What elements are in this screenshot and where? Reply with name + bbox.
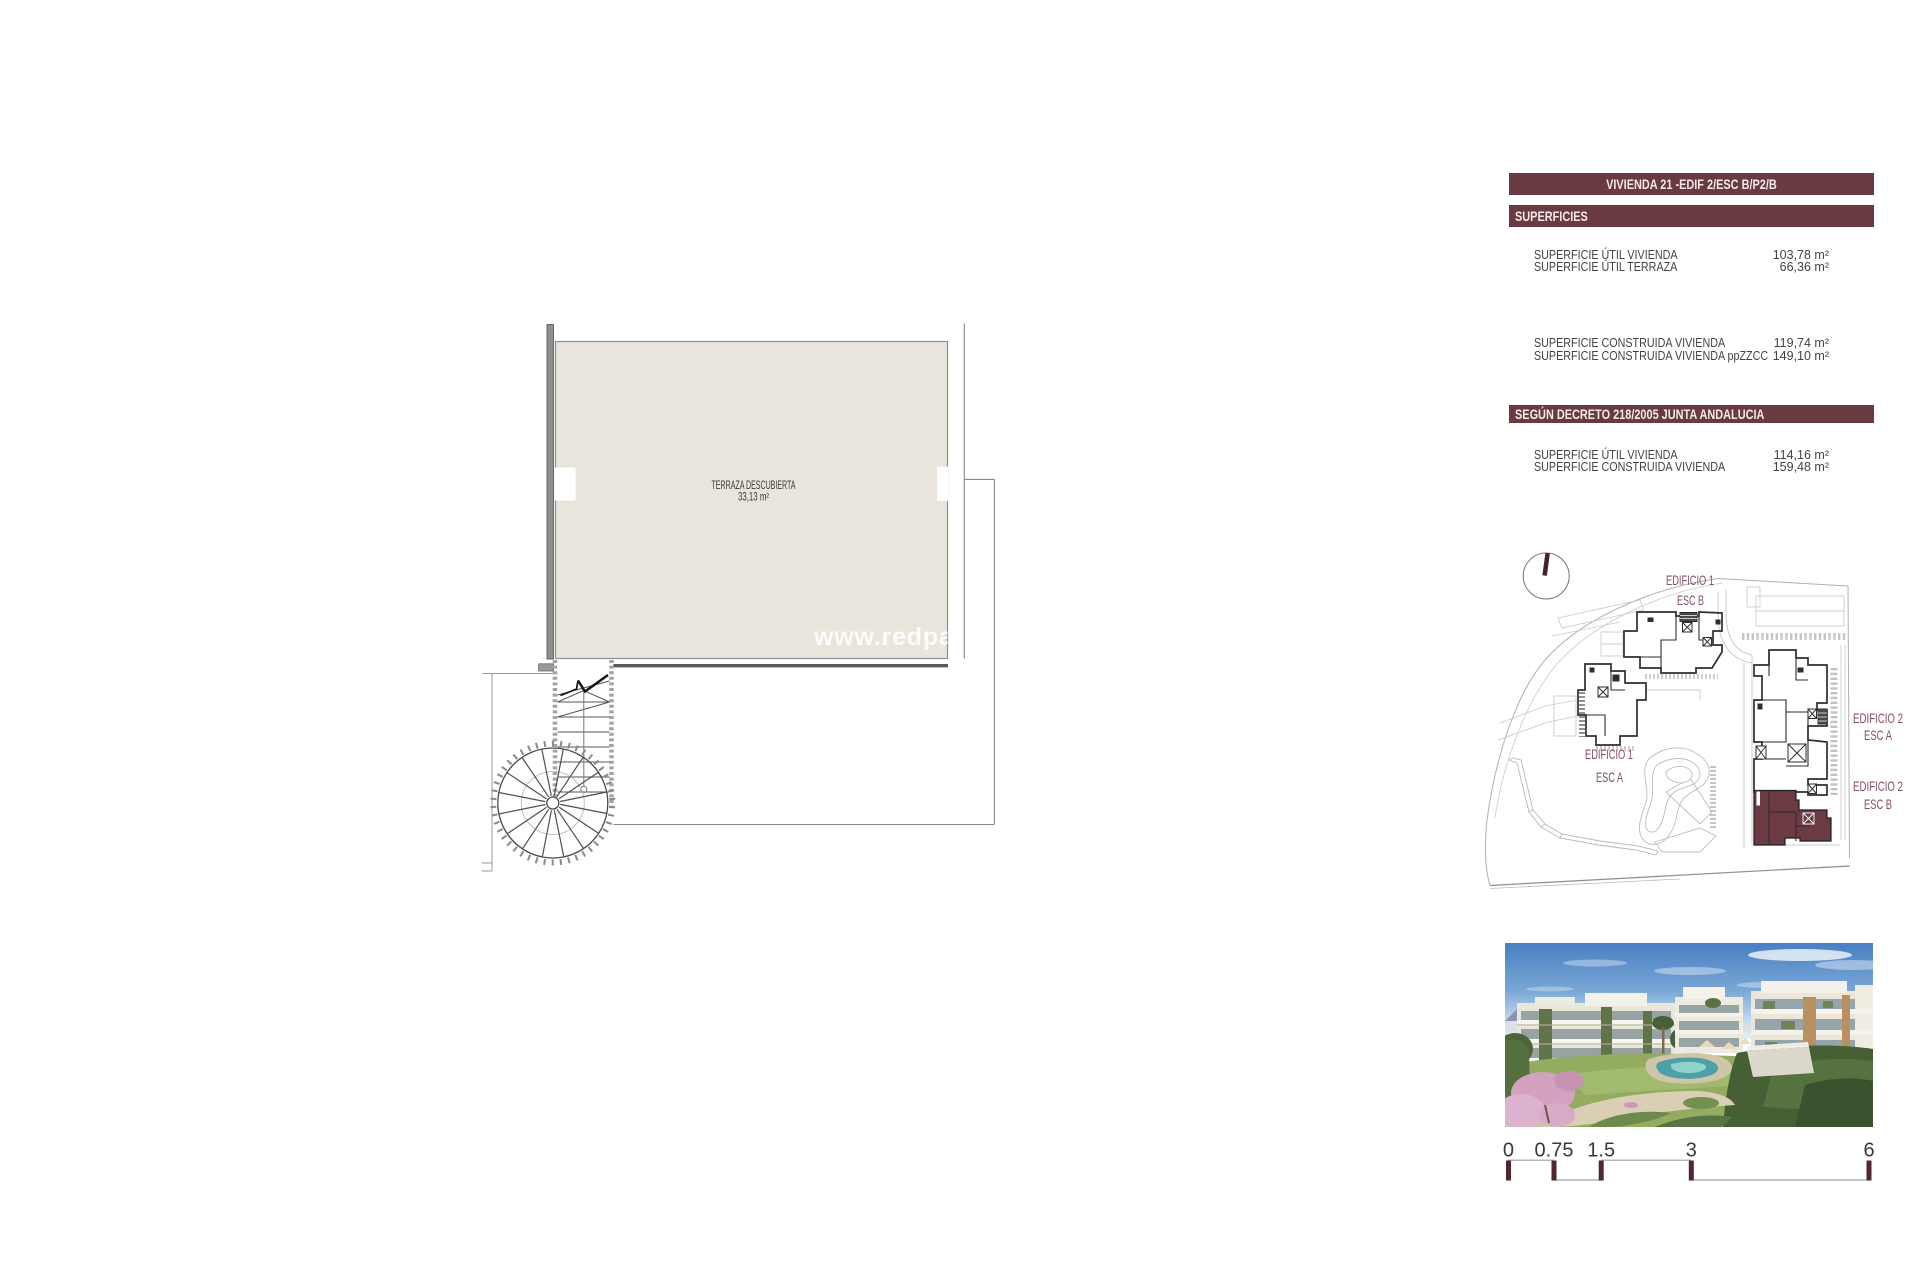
svg-text:3: 3 — [1686, 1140, 1697, 1162]
svg-text:ESC B: ESC B — [1677, 592, 1704, 608]
svg-text:EDIFICIO 1: EDIFICIO 1 — [1666, 572, 1714, 588]
svg-text:0: 0 — [1503, 1140, 1514, 1162]
svg-text:ESC B: ESC B — [1864, 796, 1892, 812]
svg-text:EDIFICIO 2: EDIFICIO 2 — [1853, 778, 1903, 794]
svg-text:ESC A: ESC A — [1864, 727, 1892, 743]
svg-text:www.redpalmproperties: www.redpalmproperties — [813, 623, 1040, 651]
svg-text:TERRAZA DESCUBIERTA: TERRAZA DESCUBIERTA — [712, 480, 796, 492]
svg-text:33,13 m²: 33,13 m² — [738, 492, 769, 504]
svg-text:EDIFICIO 1: EDIFICIO 1 — [1585, 746, 1633, 762]
svg-text:EDIFICIO 2: EDIFICIO 2 — [1853, 710, 1903, 726]
svg-text:1.5: 1.5 — [1587, 1140, 1615, 1162]
svg-text:6: 6 — [1863, 1140, 1874, 1162]
svg-text:0.75: 0.75 — [1535, 1140, 1574, 1162]
svg-text:ESC A: ESC A — [1596, 769, 1623, 785]
